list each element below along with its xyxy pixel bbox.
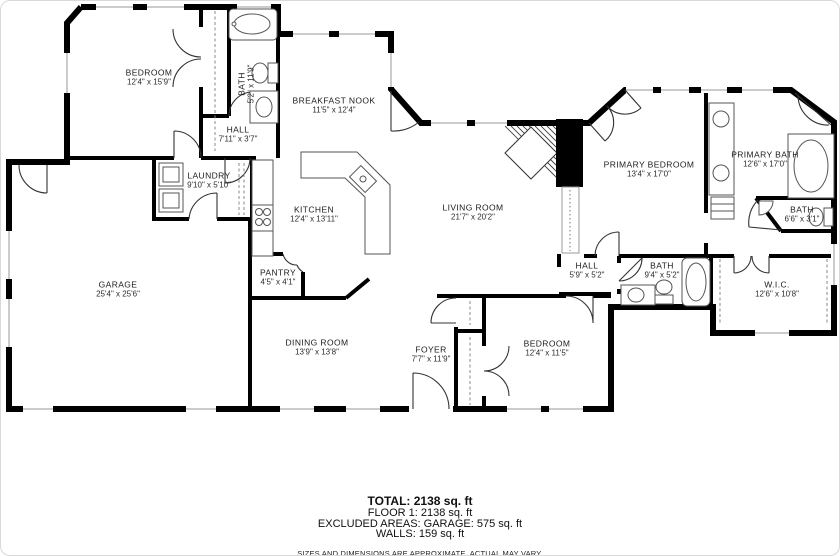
linen-shelves — [711, 197, 734, 219]
room-label-hall-rear: HALL5'9" x 5'2" — [570, 261, 605, 280]
chimney — [556, 119, 583, 187]
room-label-wic: W.I.C.12'6" x 10'8" — [755, 280, 799, 299]
disclaimer: SIZES AND DIMENSIONS ARE APPROXIMATE, AC… — [1, 549, 839, 556]
floor-plan-page: BEDROOM12'4" x 15'9" BATH5'2" x 11'9" HA… — [0, 0, 840, 556]
room-label-pantry: PANTRY4'5" x 4'1" — [260, 268, 296, 287]
kitchen-peninsula — [301, 152, 390, 254]
corner-sink — [759, 201, 773, 215]
room-label-bedroom-top: BEDROOM12'4" x 15'9" — [126, 68, 173, 87]
toilet-top — [268, 63, 278, 83]
toilet-small-bath — [824, 208, 833, 226]
room-label-breakfast-nook: BREAKFAST NOOK11'5" x 12'4" — [293, 96, 376, 115]
room-label-dining-room: DINING ROOM13'9" x 13'8" — [286, 338, 349, 357]
garden-tub — [794, 140, 828, 192]
total-area: TOTAL: 2138 sq. ft — [1, 496, 839, 507]
toilet-rear — [655, 295, 673, 304]
room-label-primary-bath: PRIMARY BATH12'6" x 17'0" — [731, 150, 799, 169]
fireplace — [505, 119, 583, 253]
floor1-area: FLOOR 1: 2138 sq. ft — [1, 508, 839, 519]
stove — [252, 205, 273, 231]
room-label-laundry: LAUNDRY9'10" x 5'10" — [187, 171, 231, 190]
room-label-hall-top: HALL7'11" x 3'7" — [219, 125, 258, 144]
room-label-living-room: LIVING ROOM21'7" x 20'2" — [442, 203, 503, 222]
room-label-foyer: FOYER7'7" x 11'9" — [412, 345, 451, 364]
room-label-primary-bedroom: PRIMARY BEDROOM13'4" x 17'0" — [604, 160, 695, 179]
walls-area: WALLS: 159 sq. ft — [1, 529, 839, 540]
room-label-kitchen: KITCHEN12'4" x 13'11" — [290, 205, 338, 224]
room-label-bath-top: BATH5'2" x 11'9" — [237, 65, 256, 104]
room-label-bath-small: BATH6'6" x 3'1" — [785, 205, 820, 224]
room-label-garage: GARAGE25'4" x 25'6" — [96, 280, 140, 299]
area-summary: TOTAL: 2138 sq. ft FLOOR 1: 2138 sq. ft … — [1, 496, 839, 556]
room-label-bath-rear: BATH9'4" x 5'2" — [645, 261, 680, 280]
room-label-bedroom-bottom: BEDROOM12'4" x 11'5" — [524, 339, 571, 358]
